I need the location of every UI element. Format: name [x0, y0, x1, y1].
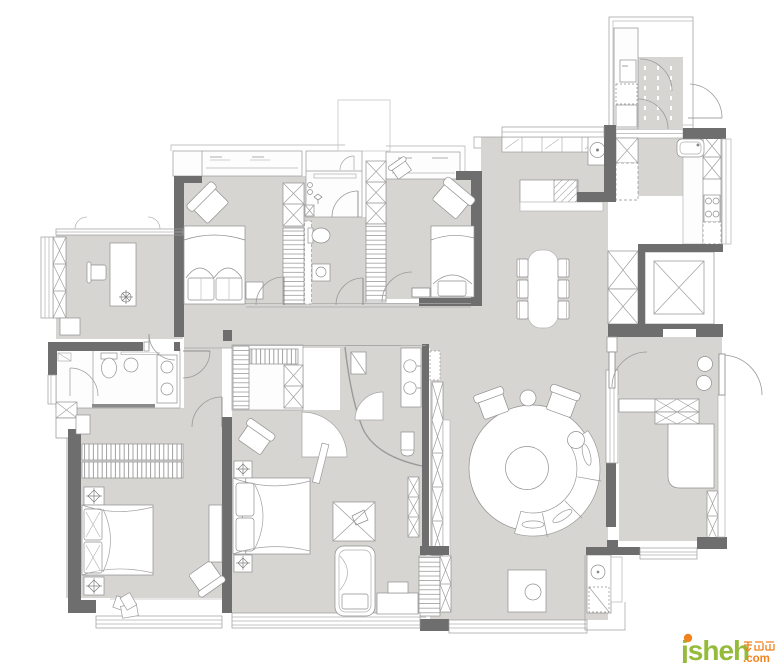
svg-text:.com: .com	[743, 653, 770, 663]
